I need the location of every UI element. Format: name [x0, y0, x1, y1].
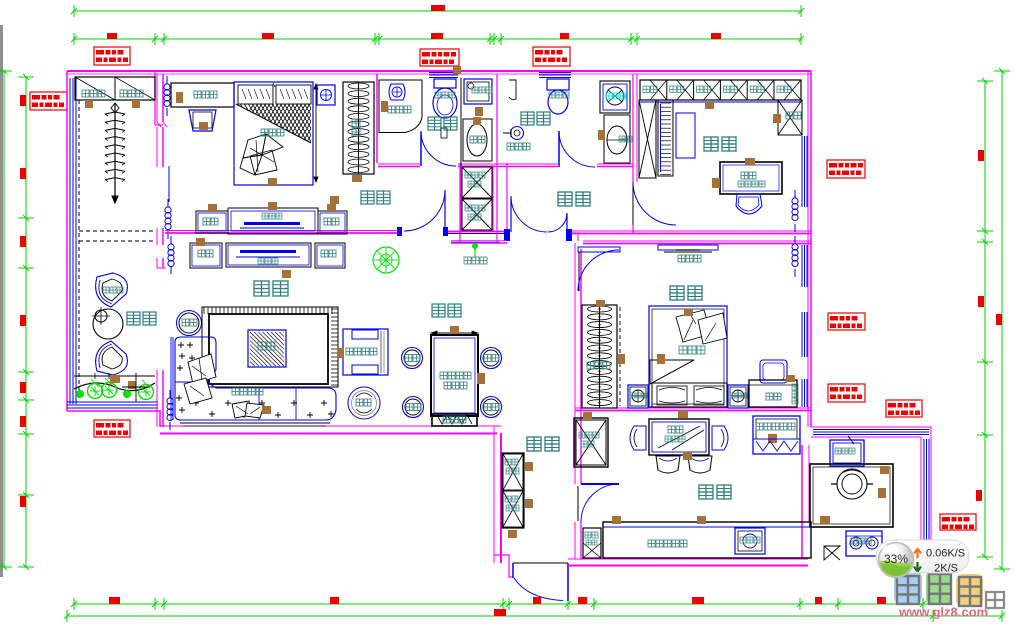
svg-text:www.glz8.com: www.glz8.com	[898, 605, 988, 620]
svg-text:0.06K/S: 0.06K/S	[926, 548, 965, 560]
svg-text:33%: 33%	[884, 552, 908, 566]
svg-text:2K/S: 2K/S	[934, 563, 958, 575]
